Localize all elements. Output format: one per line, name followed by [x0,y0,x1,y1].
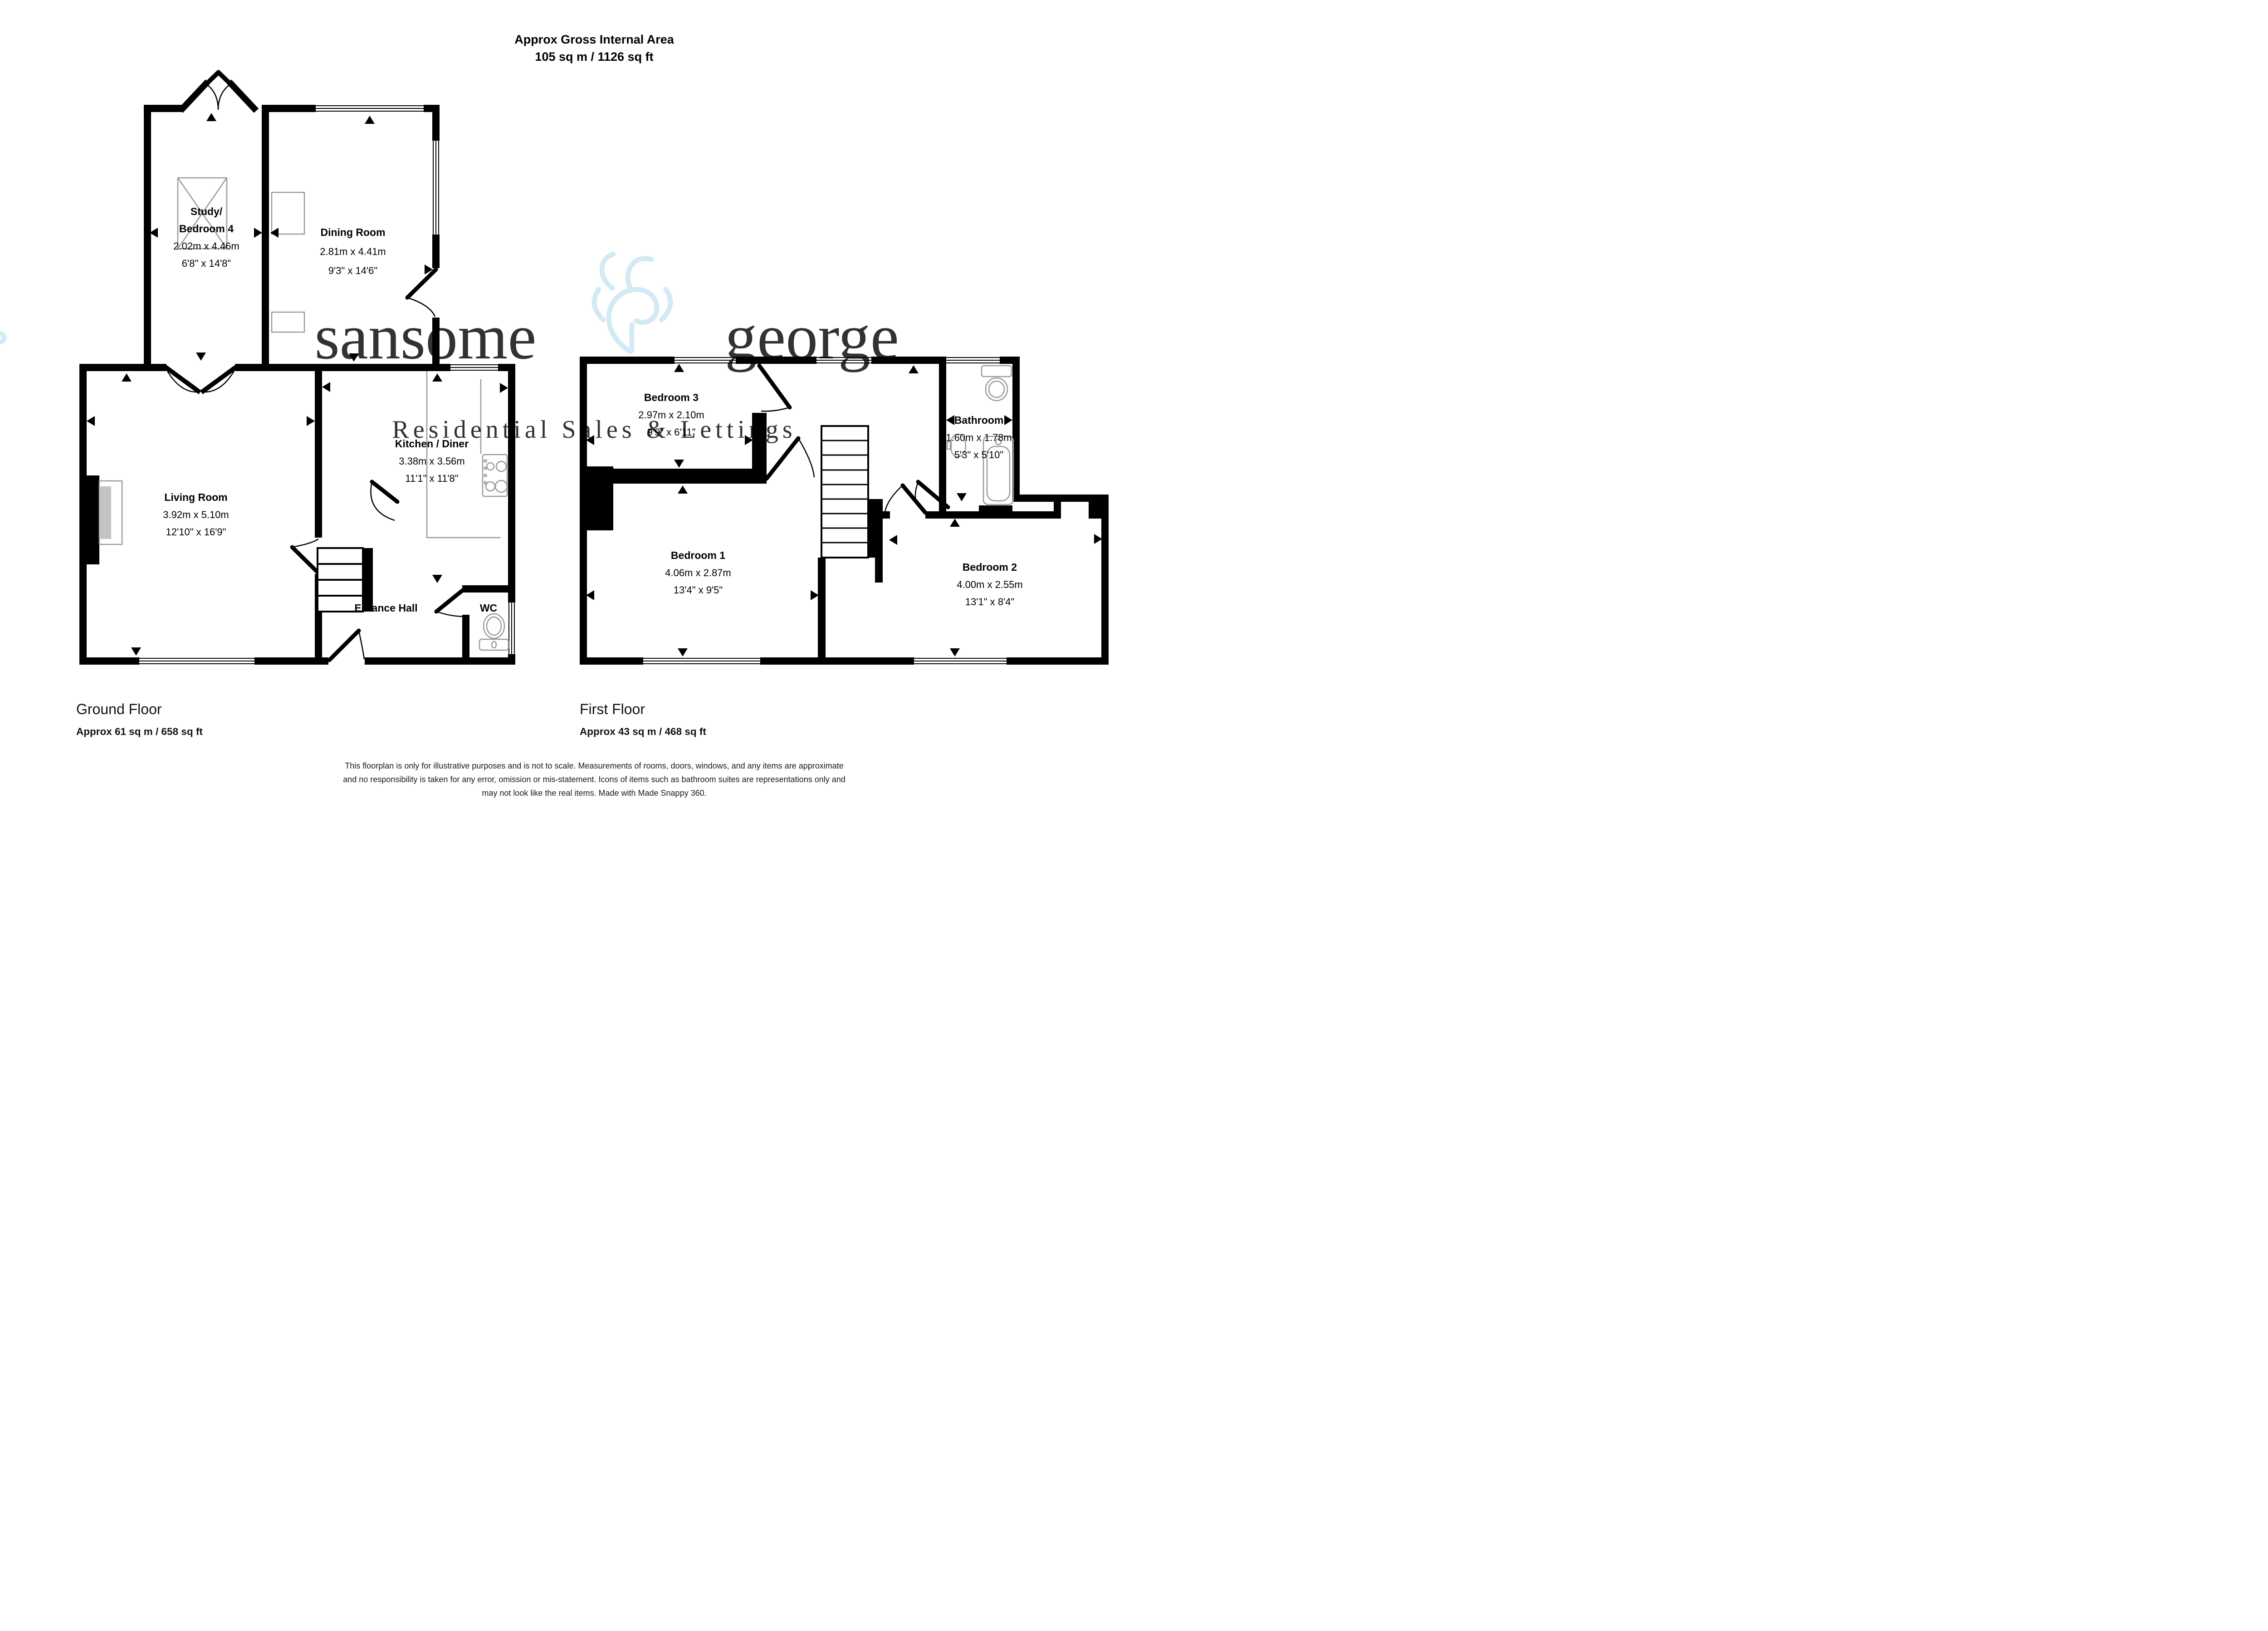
fireplace [87,475,122,564]
bathroom-bath-icon [983,436,1013,504]
kitchen-metric: 3.38m x 3.56m [399,456,465,467]
front-door [329,631,364,660]
first-floor-stairs [821,426,868,558]
disclaimer-line3: may not look like the real items. Made w… [482,789,706,798]
bed2-name: Bedroom 2 [963,561,1017,573]
window-dining-right [432,140,440,235]
room-label-bath: Bathroom 1.60m x 1.78m 5'3" x 5'10" [946,414,1012,460]
hall-name: Enrance Hall [354,602,417,614]
hob-icon [483,455,507,496]
bed1-imperial: 13'4" x 9'5" [674,584,723,596]
window-bed2-bottom [914,657,1007,665]
study-name-line1: Study/ [191,206,223,217]
study-imperial: 6'8" x 14'8" [182,258,231,269]
disclaimer-line2: and no responsibility is taken for any e… [343,775,846,784]
study-metric: 2.02m x 4.46m [173,240,240,252]
watermark-brand-right: george [725,301,899,372]
study-name-line2: Bedroom 4 [179,223,234,235]
bathroom-toilet-icon [982,366,1012,401]
window-living-bottom [139,657,255,665]
ground-floor-label: Ground Floor [76,701,162,717]
watermark: sansome george Residential Sales & Letti… [0,254,899,444]
window-bathroom-top [939,357,1000,364]
bed3-name: Bedroom 3 [644,392,699,403]
ground-floor-walls [79,82,515,665]
bath-imperial: 5'3" x 5'10" [954,449,1003,460]
window-bed1-bottom [643,657,761,665]
bath-metric: 1.60m x 1.78m [946,432,1012,443]
room-label-dining: Dining Room 2.81m x 4.41m 9'3" x 14'6" [320,226,386,276]
living-imperial: 12'10" x 16'9" [166,526,226,538]
dining-name: Dining Room [320,226,385,238]
bed3-door [759,366,790,411]
header: Approx Gross Internal Area 105 sq m / 11… [514,33,675,64]
window-wc-right [508,602,515,655]
room-label-kitchen: Kitchen / Diner 3.38m x 3.56m 11'1" x 11… [395,438,469,484]
bed2-metric: 4.00m x 2.55m [957,579,1023,590]
living-room-door [292,539,318,573]
room-label-living: Living Room 3.92m x 5.10m 12'10" x 16'9" [163,491,229,538]
kitchen-hall-door [371,482,397,520]
dining-metric: 2.81m x 4.41m [320,246,386,257]
room-label-study: Study/ Bedroom 4 2.02m x 4.46m 6'8" x 14… [173,206,240,269]
gross-area-value: 105 sq m / 1126 sq ft [535,50,653,64]
floorplan-page: Approx Gross Internal Area 105 sq m / 11… [0,0,1188,816]
wc-door [436,588,465,617]
room-label-bed1: Bedroom 1 4.06m x 2.87m 13'4" x 9'5" [665,549,731,596]
watermark-tagline: Residential Sales & Lettings [392,416,796,444]
bed2-door [885,485,925,515]
bed2-imperial: 13'1" x 8'4" [965,596,1014,607]
living-name: Living Room [164,491,227,503]
room-label-bed2: Bedroom 2 4.00m x 2.55m 13'1" x 8'4" [957,561,1023,607]
first-floor-area: Approx 43 sq m / 468 sq ft [580,726,706,737]
living-metric: 3.92m x 5.10m [163,509,229,520]
watermark-brand-left: sansome [314,301,536,372]
footer-disclaimer: This floorplan is only for illustrative … [343,761,846,798]
window-dining-top [315,105,424,112]
floor-captions: Ground Floor Approx 61 sq m / 658 sq ft … [76,701,706,737]
first-floor-label: First Floor [580,701,645,717]
wc-toilet-icon [479,614,508,650]
bed1-door [767,438,814,479]
gross-area-title: Approx Gross Internal Area [514,33,675,46]
kitchen-imperial: 11'1" x 11'8" [405,473,458,484]
bay-double-door [207,73,230,110]
bath-name: Bathroom [954,414,1004,426]
bed1-name: Bedroom 1 [671,549,725,561]
ground-floor-area: Approx 61 sq m / 658 sq ft [76,726,203,737]
floorplan-canvas: Approx Gross Internal Area 105 sq m / 11… [0,0,1188,816]
bed1-metric: 4.06m x 2.87m [665,567,731,578]
first-floor-plan: Bedroom 3 2.97m x 2.10m 9'9" x 6'11" Bat… [580,357,1109,665]
disclaimer-line1: This floorplan is only for illustrative … [345,761,844,770]
dining-units [272,192,304,332]
study-living-double-door [167,368,234,392]
dining-imperial: 9'3" x 14'6" [328,265,377,276]
wc-name: WC [480,602,497,614]
